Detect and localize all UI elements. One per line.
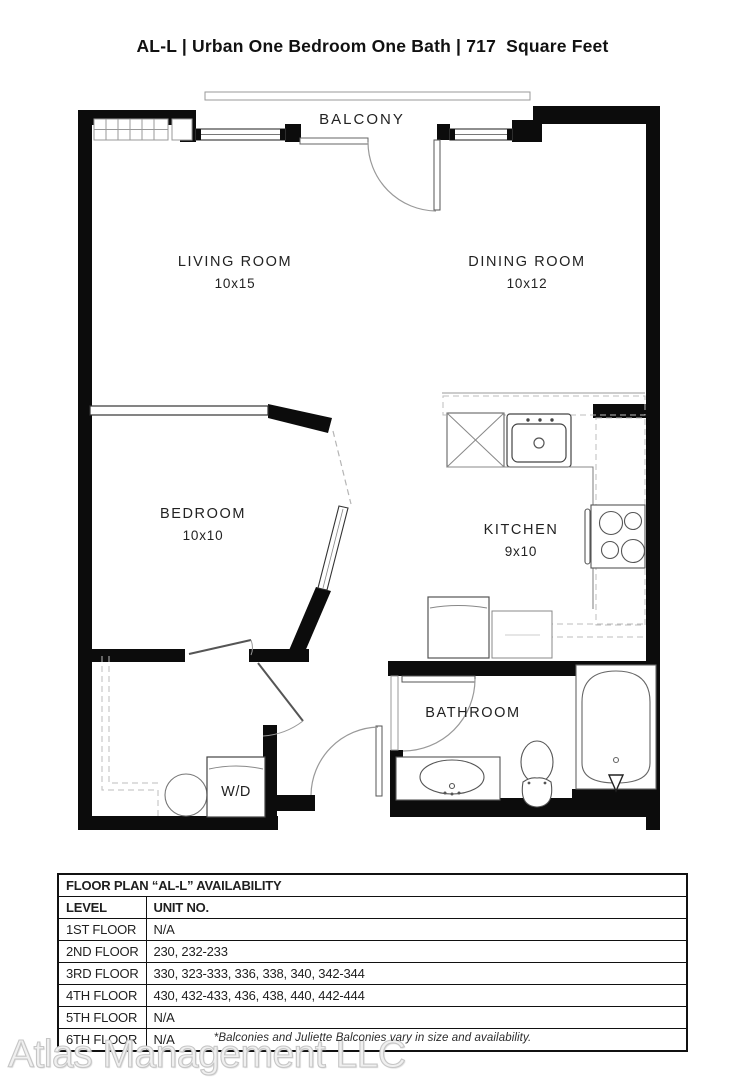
dining-room-label: DINING ROOM — [468, 254, 586, 270]
balcony — [196, 92, 530, 211]
kitchen-dims: 9x10 — [505, 544, 537, 559]
wall-tub-bottom — [572, 789, 660, 815]
wall-door-post — [437, 124, 450, 140]
bathroom-door-leaf — [402, 676, 475, 682]
table-title: FLOOR PLAN “AL-L” AVAILABILITY — [58, 874, 687, 897]
corner-cabinet — [447, 413, 504, 467]
units-cell: 230, 232-233 — [146, 941, 687, 963]
balcony-sill — [300, 138, 368, 144]
bedroom-label: BEDROOM — [160, 506, 246, 522]
balcony-door — [368, 140, 440, 211]
refrigerator — [428, 597, 489, 658]
sliding-door-track — [333, 431, 351, 504]
entry-door — [311, 726, 382, 796]
col-level: LEVEL — [58, 897, 146, 919]
level-cell: 2ND FLOOR — [58, 941, 146, 963]
wall-entry-left — [263, 795, 315, 811]
window-left — [196, 129, 285, 140]
window-right — [450, 129, 512, 140]
table-row: 5TH FLOOR N/A — [58, 1007, 687, 1029]
availability-table: FLOOR PLAN “AL-L” AVAILABILITY LEVEL UNI… — [57, 873, 688, 1052]
table-title-row: FLOOR PLAN “AL-L” AVAILABILITY — [58, 874, 687, 897]
level-cell: 1ST FLOOR — [58, 919, 146, 941]
walls — [78, 106, 660, 830]
bathtub — [576, 665, 656, 791]
col-unit-no: UNIT NO. — [146, 897, 687, 919]
wall-left — [78, 110, 92, 830]
level-cell: 4TH FLOOR — [58, 985, 146, 1007]
wall-bedroom-wedge — [268, 404, 332, 433]
dining-room-dims: 10x12 — [507, 276, 548, 291]
bathroom — [391, 665, 656, 807]
table-row: 3RD FLOOR 330, 323-333, 336, 338, 340, 3… — [58, 963, 687, 985]
vanity-sink — [396, 757, 500, 800]
table-row: 4TH FLOOR 430, 432-433, 436, 438, 440, 4… — [58, 985, 687, 1007]
units-cell: N/A — [146, 919, 687, 941]
level-cell: 5TH FLOOR — [58, 1007, 146, 1029]
wall-bottom-left — [78, 816, 278, 830]
living-room-dims: 10x15 — [215, 276, 256, 291]
cased-opening — [90, 406, 268, 415]
base-cabinet — [492, 611, 552, 658]
toilet — [521, 741, 553, 807]
floor-plan-page: AL-L | Urban One Bedroom One Bath | 717 … — [0, 0, 745, 1080]
wall-bedroom-bottom-right — [249, 649, 309, 662]
closet-shelving — [102, 656, 158, 816]
bedroom-door — [189, 640, 253, 655]
bedroom-divider — [90, 406, 351, 590]
baseboard-heater — [94, 119, 192, 140]
wall-bedroom-bottom — [88, 649, 185, 662]
washer-dryer: W/D — [207, 757, 265, 817]
wall-window-post — [285, 124, 301, 142]
kitchen-sink — [507, 414, 571, 467]
stove — [585, 505, 645, 568]
balcony-label: BALCONY — [319, 111, 405, 128]
balcony-footnote: *Balconies and Juliette Balconies vary i… — [0, 1032, 745, 1044]
bedroom-dims: 10x10 — [183, 528, 224, 543]
units-cell: N/A — [146, 1007, 687, 1029]
wd-label: W/D — [221, 784, 251, 800]
balcony-rail — [205, 92, 530, 100]
bathroom-label: BATHROOM — [425, 705, 521, 721]
level-cell: 3RD FLOOR — [58, 963, 146, 985]
wall-kitchen-stub — [593, 404, 646, 418]
table-row: 2ND FLOOR 230, 232-233 — [58, 941, 687, 963]
sliding-door-panel — [318, 506, 348, 590]
water-heater — [165, 774, 207, 816]
kitchen-label: KITCHEN — [484, 522, 559, 538]
units-cell: 430, 432-433, 436, 438, 440, 442-444 — [146, 985, 687, 1007]
wall-top-right — [533, 106, 660, 124]
units-cell: 330, 323-333, 336, 338, 340, 342-344 — [146, 963, 687, 985]
living-room-label: LIVING ROOM — [178, 254, 292, 270]
table-row: 1ST FLOOR N/A — [58, 919, 687, 941]
table-header-row: LEVEL UNIT NO. — [58, 897, 687, 919]
counter-edge — [447, 467, 593, 505]
